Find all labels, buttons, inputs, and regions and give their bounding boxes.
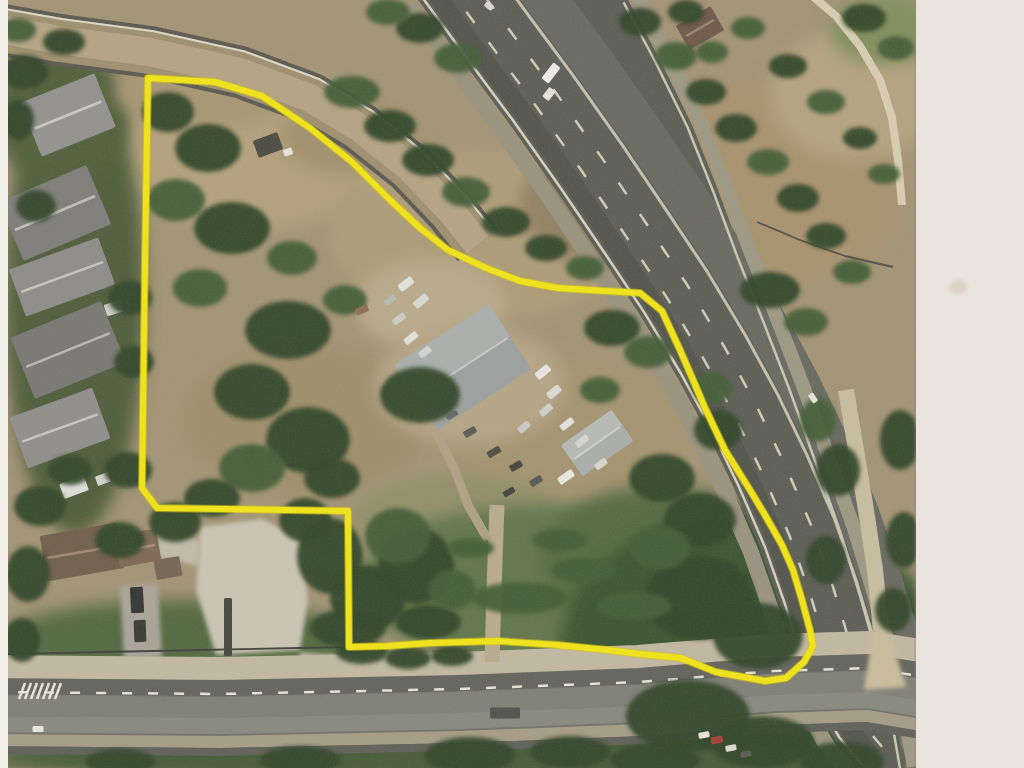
aerial-photo xyxy=(0,0,940,768)
aerial-photo-scene xyxy=(0,0,1024,768)
paper-left-margin xyxy=(0,0,8,768)
paper-right-margin xyxy=(916,0,1024,768)
paper-smudge xyxy=(949,280,967,294)
aerial-photo-page xyxy=(0,0,1024,768)
